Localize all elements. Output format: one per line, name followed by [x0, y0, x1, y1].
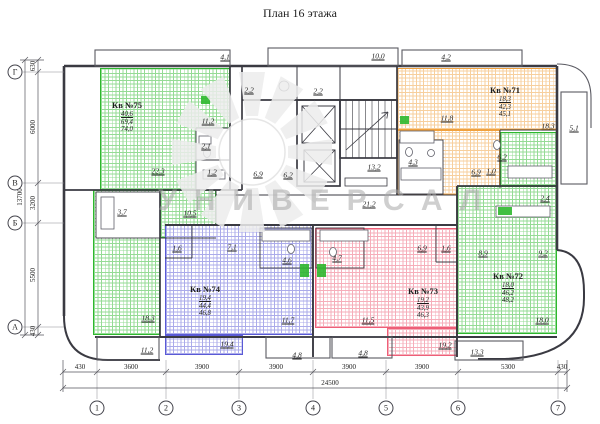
room-area-label: 1,6 [172, 244, 181, 253]
apartment-number: Кв №75 [112, 100, 142, 110]
axis-marker-4: 4 [306, 401, 321, 416]
room-area-label: 6,2 [497, 153, 506, 162]
apartment-area-value: 19,2 [408, 297, 438, 305]
dimension-value: 5500 [29, 268, 37, 282]
axis-marker-А: А [8, 320, 23, 335]
floor-plan: УНИВЕРСАЛ 4,110,04,22,22,211,222,32,11,2… [0, 0, 600, 424]
room-area-label: 4,1 [220, 53, 229, 62]
room-area-label: 2,2 [244, 86, 253, 95]
room-area-label: 11,5 [362, 316, 375, 325]
room-area-label: 4,6 [282, 256, 291, 265]
axis-marker-Г: Г [8, 65, 23, 80]
dimension-total: 24500 [321, 379, 339, 387]
apartment-area-value: 69,4 [112, 119, 142, 127]
room-area-label: 10,5 [183, 209, 196, 218]
dimension-value: 630 [29, 61, 37, 72]
room-area-label: 9,2 [538, 249, 547, 258]
room-area-label: 5,1 [569, 124, 578, 133]
dimension-value: 3200 [29, 196, 37, 210]
apartment-area-value: 19,4 [190, 295, 220, 303]
room-area-label: 2,1 [201, 142, 210, 151]
apartment-info: Кв №7540,669,474,0 [112, 100, 142, 134]
apartment-number: Кв №72 [493, 271, 523, 281]
dimension-value: 6000 [29, 120, 37, 134]
apartment-info: Кв №7319,243,946,3 [408, 286, 438, 320]
dimension-value: 3600 [124, 363, 138, 371]
axis-marker-2: 2 [159, 401, 174, 416]
apartment-area-value: 74,0 [112, 126, 142, 134]
room-area-label: 18,0 [535, 316, 548, 325]
dimension-value: 3900 [342, 363, 356, 371]
room-area-label: 11,7 [282, 316, 295, 325]
dimension-value: 5300 [501, 363, 515, 371]
page-title: План 16 этажа [263, 6, 337, 21]
axis-marker-6: 6 [451, 401, 466, 416]
axis-marker-Б: Б [8, 216, 23, 231]
room-area-label: 2,4 [540, 194, 549, 203]
apartment-area-value: 45,1 [490, 111, 520, 119]
room-area-label: 11,8 [441, 114, 454, 123]
apartment-number: Кв №73 [408, 286, 438, 296]
room-area-label: 3,7 [117, 208, 126, 217]
axis-marker-В: В [8, 176, 23, 191]
room-area-label: 11,2 [202, 117, 215, 126]
room-area-label: 19,2 [438, 341, 451, 350]
room-area-label: 11,2 [141, 346, 154, 355]
apartment-number: Кв №71 [490, 85, 520, 95]
room-area-label: 21,2 [362, 200, 375, 209]
apartment-area-value: 46,8 [190, 310, 220, 318]
room-area-label: 1,2 [207, 168, 216, 177]
apartment-area-value: 46,3 [408, 312, 438, 320]
apartment-area-value: 48,2 [493, 297, 523, 305]
floor-plan-canvas: План 16 этажа [0, 0, 600, 424]
room-area-label: 6,2 [283, 171, 292, 180]
room-area-label: 4,2 [441, 53, 450, 62]
room-area-label: 2,2 [313, 87, 322, 96]
axis-marker-3: 3 [232, 401, 247, 416]
dimension-total: 13700 [16, 188, 24, 206]
room-area-label: 1,6 [441, 244, 450, 253]
apartment-area-value: 18,0 [493, 282, 523, 290]
room-area-label: 4,8 [292, 351, 301, 360]
dimension-value: 430 [75, 363, 86, 371]
room-area-label: 6,9 [417, 244, 426, 253]
apartment-area-value: 18,3 [490, 96, 520, 104]
dimension-value: 3900 [195, 363, 209, 371]
room-area-label: 4,3 [408, 158, 417, 167]
apartment-area-value: 42,3 [490, 104, 520, 112]
apartment-number: Кв №74 [190, 284, 220, 294]
axis-marker-7: 7 [551, 401, 566, 416]
apartment-info: Кв №7218,046,248,2 [493, 271, 523, 305]
room-area-label: 7,1 [227, 243, 236, 252]
axis-marker-5: 5 [379, 401, 394, 416]
room-area-label: 4,7 [332, 254, 341, 263]
room-area-label: 13,3 [470, 348, 483, 357]
apartment-info: Кв №7419,444,446,8 [190, 284, 220, 318]
dimension-value: 430 [557, 363, 568, 371]
apartment-info: Кв №7118,342,345,1 [490, 85, 520, 119]
apartment-area-value: 46,2 [493, 290, 523, 298]
room-area-label: 19,4 [220, 340, 233, 349]
dimension-value: 3900 [415, 363, 429, 371]
dimension-value: 430 [29, 326, 37, 337]
room-area-label: 4,8 [358, 349, 367, 358]
room-area-label: 13,2 [367, 163, 380, 172]
labels-layer: 4,110,04,22,22,211,222,32,11,23,710,518,… [0, 0, 600, 424]
apartment-area-value: 44,4 [190, 303, 220, 311]
room-area-label: 22,3 [151, 167, 164, 176]
dimension-value: 3900 [269, 363, 283, 371]
room-area-label: 6,9 [471, 168, 480, 177]
apartment-area-value: 40,6 [112, 111, 142, 119]
room-area-label: 1,0 [486, 167, 495, 176]
axis-marker-1: 1 [90, 401, 105, 416]
room-area-label: 6,9 [253, 170, 262, 179]
room-area-label: 8,9 [478, 249, 487, 258]
room-area-label: 10,0 [371, 52, 384, 61]
room-area-label: 18,3 [141, 314, 154, 323]
apartment-area-value: 43,9 [408, 305, 438, 313]
room-area-label: 18,3 [541, 122, 554, 131]
